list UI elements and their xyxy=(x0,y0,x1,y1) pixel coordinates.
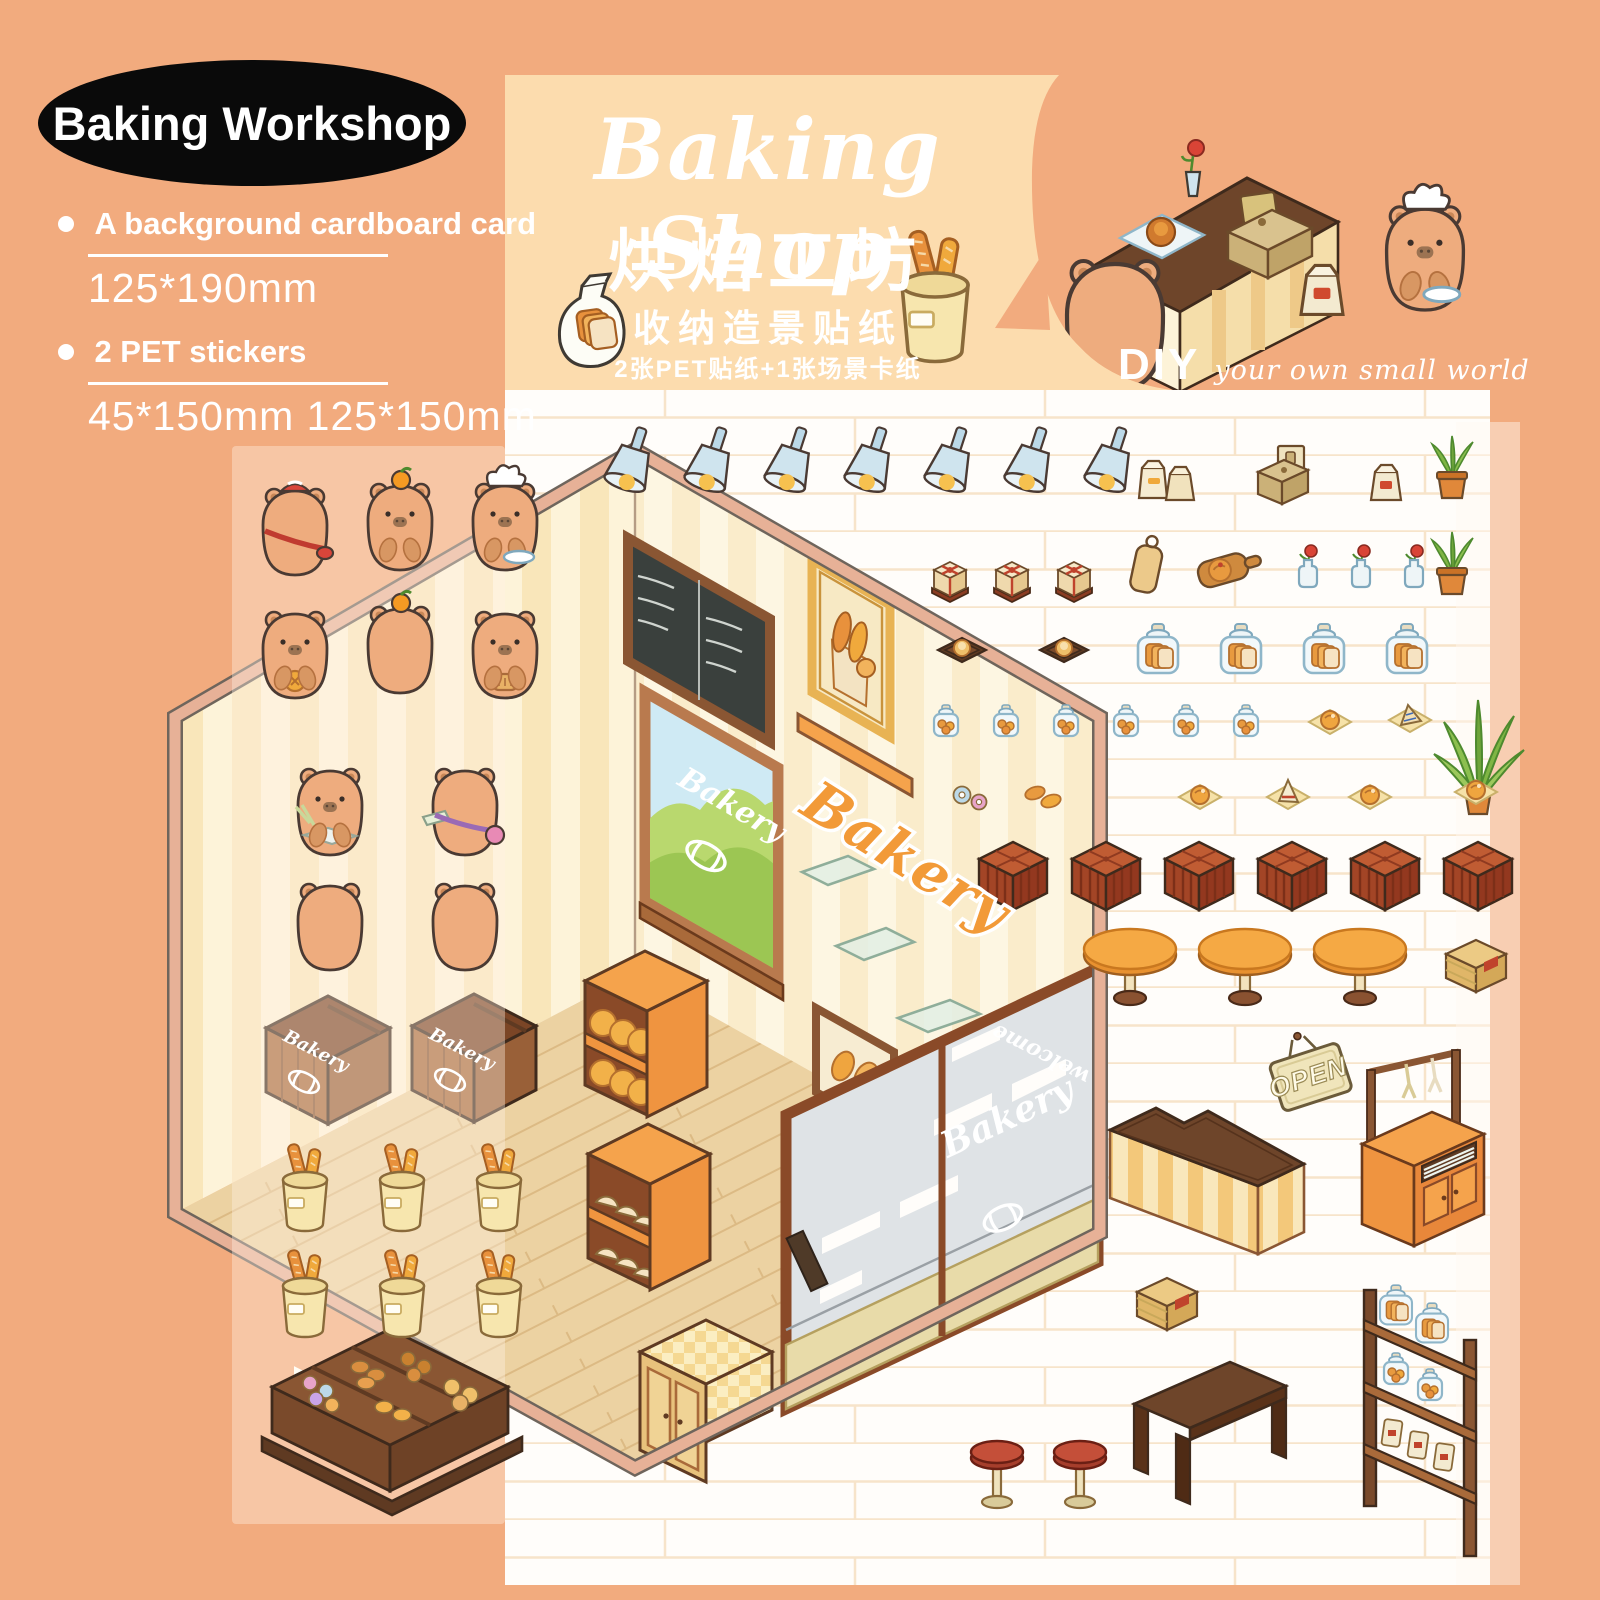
capybara-back-sticker xyxy=(298,884,362,970)
capybara-orange-hat-sticker xyxy=(368,468,432,570)
spec-list: A background cardboard card 125*190mm 2 … xyxy=(58,206,538,462)
spec-divider xyxy=(88,254,388,257)
capybara-orange-back-sticker xyxy=(368,591,432,693)
gift-box-sticker xyxy=(932,562,968,602)
badge-label: Baking Workshop xyxy=(53,96,452,151)
spec-item: 2 PET stickers 45*150mm 125*150mm xyxy=(58,334,538,440)
spec-divider xyxy=(88,382,388,385)
spec-size-value: 45*150mm 125*150mm xyxy=(88,393,538,440)
bullet-dot-icon xyxy=(58,344,74,360)
capybara-baker-tray-sticker xyxy=(296,769,362,855)
cake-shelf-unit xyxy=(588,1124,710,1290)
spec-item: A background cardboard card 125*190mm xyxy=(58,206,538,312)
product-title-badge: Baking Workshop xyxy=(38,60,466,186)
bread-bag-sticker xyxy=(1371,465,1401,500)
diy-word: DIY xyxy=(1118,340,1200,390)
diy-tagline: your own small world xyxy=(1214,355,1529,386)
takeout-bag-icon xyxy=(1301,265,1343,314)
title-chinese: 烘焙工坊 xyxy=(558,206,978,305)
bread-shelf-unit xyxy=(585,951,707,1117)
diy-tagline-row: DIY your own small world xyxy=(1118,340,1530,390)
spec-item-label: A background cardboard card xyxy=(94,206,536,241)
spec-item-label: 2 PET stickers xyxy=(94,334,306,369)
gift-box-sticker xyxy=(994,562,1030,602)
gift-box-sticker xyxy=(1056,562,1092,602)
capybara-back-sticker xyxy=(433,884,497,970)
subtitle-chinese: 收纳造景贴纸 xyxy=(558,298,978,352)
capybara-bread-sticker xyxy=(473,612,537,698)
capybara-cookie-sticker xyxy=(263,612,327,698)
capybara-beret-back-sticker xyxy=(263,482,333,575)
product-poster: Bakery Bakery Bakery Bakery Bakery OPEN … xyxy=(0,0,1600,1600)
spec-size-value: 125*190mm xyxy=(88,265,538,312)
contents-chinese: 2张PET贴纸+1张场景卡纸 xyxy=(558,349,978,384)
bullet-dot-icon xyxy=(58,216,74,232)
